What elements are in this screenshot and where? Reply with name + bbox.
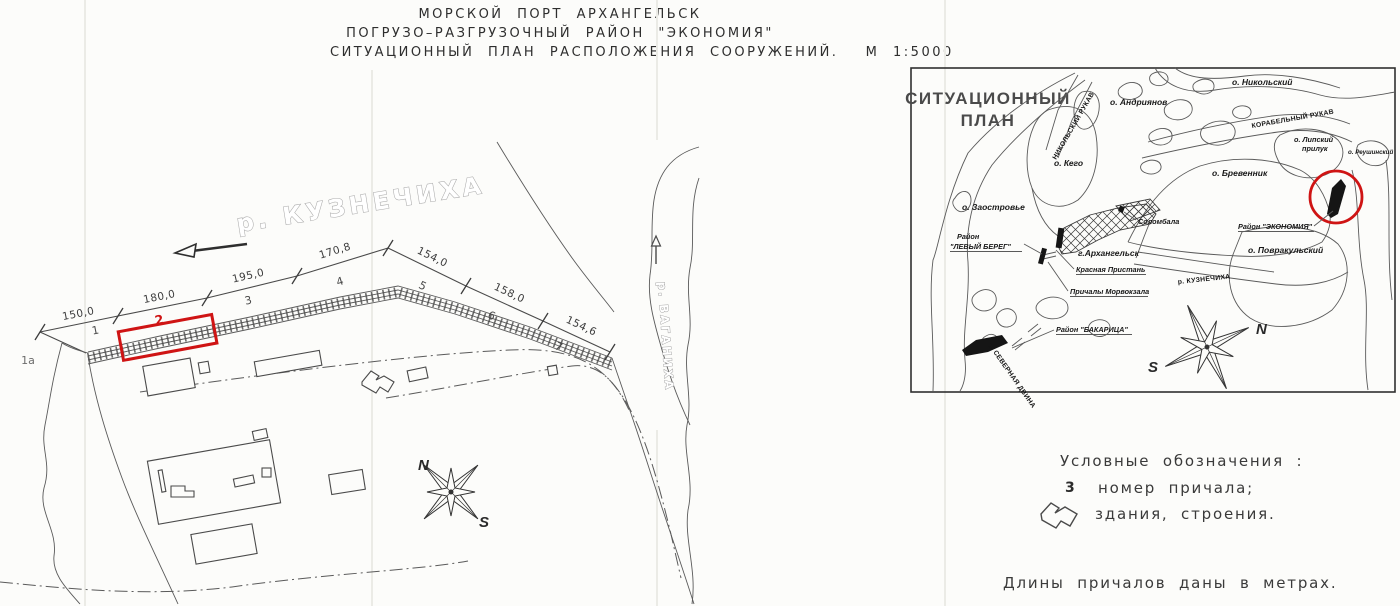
- legend-title: Условные обозначения :: [1060, 452, 1303, 470]
- berth-3-length: 195,0: [231, 267, 265, 286]
- compass-main-north-label: N: [418, 457, 430, 474]
- berth-5-length: 154,0: [415, 245, 450, 270]
- district-bakaritsa-label: Район "БАКАРИЦА": [1056, 325, 1128, 334]
- channel-korabelny-rukav-label: КОРАБЕЛЬНЫЙ РУКАВ: [1251, 107, 1335, 130]
- legend-berth-number-text: номер причала;: [1098, 479, 1254, 497]
- berth-4-length: 170,8: [318, 241, 353, 262]
- compass-rose-inset: N S: [1146, 286, 1268, 408]
- berth-1-length: 150,0: [61, 305, 95, 323]
- island-lipsky-label-2: прилук: [1302, 144, 1328, 153]
- island-reushinsky-label: о. Реушинский: [1348, 149, 1393, 156]
- legend-buildings-text: здания, строения.: [1095, 505, 1276, 523]
- island-lipsky-label-1: о. Липский: [1294, 135, 1334, 144]
- district-solombala-label: Соломбала: [1138, 217, 1179, 226]
- river-vaganikha: р. ВАГАНИХА: [652, 236, 677, 391]
- river-kuznechikha-inset-label: р. КУЗНЕЧИХА: [1177, 273, 1230, 285]
- main-plan: р. КУЗНЕЧИХА: [0, 142, 699, 604]
- river-kuznechikha-label: р. КУЗНЕЧИХА: [235, 171, 487, 238]
- scanned-port-plan-page: МОРСКОЙ ПОРТ АРХАНГЕЛЬСК ПОГРУЗО–РАЗГРУЗ…: [0, 0, 1400, 606]
- berth-1a-number: 1а: [21, 354, 35, 367]
- district-ekonomiya-label: Район "ЭКОНОМИЯ": [1238, 222, 1313, 231]
- compass-inset-north-label: N: [1256, 321, 1268, 338]
- railway-lines: [0, 350, 681, 592]
- river-severnaya-dvina-label: р. СЕВЕРНАЯ ДВИНА: [986, 342, 1036, 409]
- island-nikolsky-label: о. Никольский: [1232, 77, 1293, 87]
- berth-4-number: 4: [335, 274, 345, 288]
- district-levy-bereg-label-1: Район: [957, 232, 980, 241]
- city-arkhangelsk-label: г.Архангельск: [1078, 248, 1140, 258]
- berth-1-number: 1: [91, 324, 100, 338]
- compass-main-south-label: S: [479, 514, 489, 531]
- inset-title-line-1: СИТУАЦИОННЫЙ: [905, 89, 1071, 108]
- flow-arrow-icon: [175, 244, 247, 257]
- flow-arrow-up-icon: [652, 236, 661, 246]
- legend-berth-number-symbol: 3: [1065, 480, 1075, 496]
- berth-5-number: 5: [417, 278, 429, 293]
- inset-title-line-2: ПЛАН: [961, 111, 1016, 130]
- prichaly-morvokzala-label: Причалы Морвокзала: [1070, 287, 1149, 296]
- island-andriyanov-label: о. Андриянов: [1110, 97, 1167, 107]
- berth-3-number: 3: [243, 293, 253, 307]
- district-levy-bereg-label-2: "ЛЕВЫЙ БЕРЕГ": [950, 242, 1011, 251]
- island-brevennik-label: о. Бревенник: [1212, 168, 1268, 178]
- legend-building-icon: [1038, 499, 1086, 533]
- krasnaya-pristan-label: Красная Пристань: [1076, 265, 1145, 274]
- crease-lines: [85, 0, 945, 606]
- berth-2-length: 180,0: [142, 288, 176, 306]
- berth-2-number: 2: [153, 311, 164, 327]
- island-povrakulsky-label: о. Повракульский: [1248, 245, 1324, 255]
- footnote: Длины причалов даны в метрах.: [1003, 574, 1337, 592]
- buildings: [143, 350, 558, 564]
- berth-6-length: 158,0: [492, 281, 527, 306]
- inset-labels: о. Никольский о. Андриянов о. Кего о. Бр…: [950, 77, 1393, 410]
- inset-map: СИТУАЦИОННЫЙ ПЛАН: [905, 68, 1395, 410]
- berth-7-length: 154,6: [564, 314, 599, 339]
- compass-inset-south-label: S: [1148, 359, 1158, 376]
- compass-rose-main: N S: [397, 438, 504, 545]
- island-zaostrovye-label: о. Заостровье: [962, 202, 1025, 212]
